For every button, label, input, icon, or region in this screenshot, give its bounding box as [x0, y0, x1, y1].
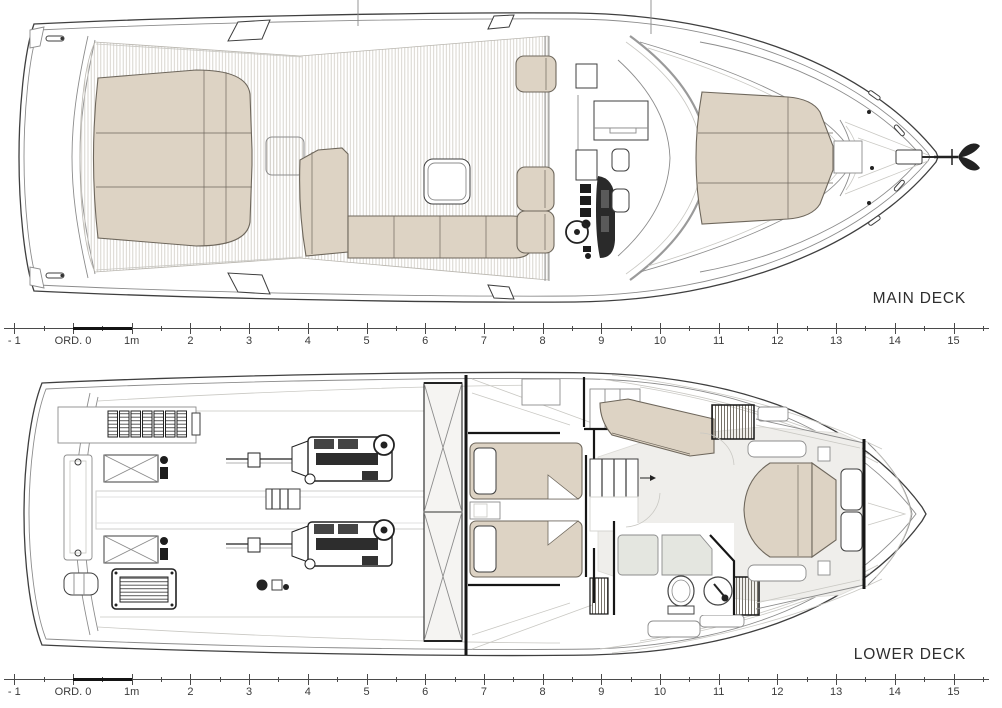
ruler-label: 7 [481, 686, 487, 698]
side-shelf [748, 441, 806, 457]
ruler-tick [954, 323, 955, 334]
ruler-tick [132, 674, 133, 685]
ruler-tick [807, 677, 808, 682]
lower-deck-label: LOWER DECK [854, 646, 966, 664]
bath-bench [648, 621, 700, 637]
ruler-tick [278, 326, 279, 331]
ruler-label: ORD. 0 [55, 686, 92, 698]
shower-tray [662, 535, 712, 575]
ruler-tick [249, 323, 250, 334]
ruler-tick [14, 674, 15, 685]
ruler-baseline [4, 328, 989, 329]
ruler-label: 3 [246, 335, 252, 347]
ruler-tick [895, 674, 896, 685]
ruler-tick [572, 326, 573, 331]
ruler-label: 4 [305, 686, 311, 698]
ruler-label: 11 [713, 335, 724, 347]
ruler-tick [396, 677, 397, 682]
ruler-baseline [4, 679, 989, 680]
ruler-label: 6 [422, 686, 428, 698]
ruler-tick [777, 674, 778, 685]
aft-sunpad [94, 70, 253, 246]
ruler-tick [836, 323, 837, 334]
ruler-tick [807, 326, 808, 331]
helm-stool [612, 189, 629, 212]
ruler-tick [220, 677, 221, 682]
main-deck-drawing [0, 0, 1002, 318]
ruler-tick [220, 326, 221, 331]
shower-icon [704, 577, 732, 605]
main-deck-scale-ruler: - 1ORD. 01m23456789101112131415 [0, 320, 1002, 357]
ruler-tick [425, 674, 426, 685]
ruler-tick [836, 674, 837, 685]
ruler-tick [132, 323, 133, 334]
ruler-tick [367, 674, 368, 685]
ruler-label: 15 [947, 686, 959, 698]
helm-stool [612, 149, 629, 171]
ruler-label: 8 [540, 686, 546, 698]
ruler-label: 2 [187, 686, 193, 698]
nightstand [470, 502, 500, 519]
helm-seats [517, 167, 554, 253]
ruler-label: 14 [889, 686, 901, 698]
ruler-tick [895, 323, 896, 334]
stern-cleat-bottom [46, 273, 64, 278]
guest-bed [470, 521, 582, 577]
ruler-label: 1m [124, 335, 139, 347]
ruler-tick [14, 323, 15, 334]
ruler-tick [190, 674, 191, 685]
ruler-tick [543, 323, 544, 334]
ruler-tick [484, 674, 485, 685]
wardrobe [712, 405, 754, 439]
ruler-label: 14 [889, 335, 901, 347]
ruler-tick [865, 677, 866, 682]
battery-bank [58, 407, 200, 443]
ruler-tick [455, 677, 456, 682]
ruler-label: 9 [598, 686, 604, 698]
ruler-label: 8 [540, 335, 546, 347]
ruler-tick [689, 677, 690, 682]
ruler-label: 7 [481, 335, 487, 347]
foredeck-hatch [834, 141, 862, 173]
ruler-tick [367, 323, 368, 334]
helm-companion-seat [516, 56, 556, 92]
guest-bed [470, 443, 582, 499]
ruler-tick [337, 326, 338, 331]
ruler-label: 10 [654, 335, 666, 347]
main-deck-label: MAIN DECK [873, 290, 966, 308]
equipment-crate [104, 455, 168, 482]
lower-deck-scale-ruler: - 1ORD. 01m23456789101112131415 [0, 671, 1002, 708]
yacht-deck-plans: MAIN DECK LOWER DECK - 1ORD. 01m23456789… [0, 0, 1002, 708]
ruler-tick [983, 326, 984, 331]
ruler-label: - 1 [8, 686, 21, 698]
sink-counter [618, 535, 658, 575]
side-shelf [748, 565, 806, 581]
ruler-tick [513, 677, 514, 682]
ruler-label: 2 [187, 335, 193, 347]
ruler-tick [572, 677, 573, 682]
galley-counter [594, 101, 648, 140]
cabin-door [758, 407, 788, 421]
ruler-scale-bar [73, 678, 132, 681]
ruler-tick [337, 677, 338, 682]
ruler-tick [249, 674, 250, 685]
equipment-crate [104, 536, 168, 563]
ruler-tick [748, 326, 749, 331]
nightstand [841, 469, 862, 510]
ruler-tick [396, 326, 397, 331]
ruler-label: 13 [830, 335, 842, 347]
ruler-tick [924, 326, 925, 331]
toilet-icon [668, 576, 694, 614]
ruler-tick [455, 326, 456, 331]
ruler-label: 5 [363, 686, 369, 698]
ruler-label: 9 [598, 335, 604, 347]
ruler-label: 6 [422, 335, 428, 347]
ruler-tick [631, 677, 632, 682]
ruler-label: - 1 [8, 335, 21, 347]
water-tank [64, 573, 98, 595]
ruler-tick [161, 326, 162, 331]
master-bed [744, 463, 836, 557]
ruler-scale-bar [73, 327, 132, 330]
ruler-label: 12 [771, 686, 783, 698]
nightstand [841, 512, 862, 551]
ruler-tick [719, 674, 720, 685]
hull-locker [818, 561, 830, 575]
ruler-tick [513, 326, 514, 331]
ruler-tick [308, 674, 309, 685]
ruler-tick [924, 677, 925, 682]
ruler-tick [601, 674, 602, 685]
ruler-tick [983, 677, 984, 682]
ruler-tick [660, 323, 661, 334]
ruler-label: ORD. 0 [55, 335, 92, 347]
ruler-label: 1m [124, 686, 139, 698]
anchor-icon [934, 144, 980, 171]
ruler-tick [865, 326, 866, 331]
coffee-table [424, 159, 470, 204]
fuel-tank [424, 383, 462, 641]
step-ladder [266, 489, 300, 509]
ruler-label: 11 [713, 686, 724, 698]
ruler-tick [44, 326, 45, 331]
hull-locker [818, 447, 830, 461]
ruler-label: 10 [654, 686, 666, 698]
locker [590, 578, 608, 614]
ruler-tick [484, 323, 485, 334]
ruler-tick [161, 677, 162, 682]
ruler-label: 5 [363, 335, 369, 347]
ruler-label: 12 [771, 335, 783, 347]
ruler-tick [748, 677, 749, 682]
ruler-tick [631, 326, 632, 331]
ruler-label: 13 [830, 686, 842, 698]
ruler-tick [601, 323, 602, 334]
lower-deck-drawing [0, 363, 1002, 669]
ruler-tick [719, 323, 720, 334]
ruler-tick [954, 674, 955, 685]
ruler-tick [689, 326, 690, 331]
ruler-tick [308, 323, 309, 334]
ruler-label: 3 [246, 686, 252, 698]
ruler-tick [44, 677, 45, 682]
ruler-tick [543, 674, 544, 685]
ruler-tick [425, 323, 426, 334]
ruler-label: 15 [947, 335, 959, 347]
deck-hatch [266, 137, 304, 175]
generator [112, 569, 176, 609]
wardrobe [733, 577, 759, 615]
ruler-tick [190, 323, 191, 334]
ruler-label: 4 [305, 335, 311, 347]
ruler-tick [660, 674, 661, 685]
stern-cleat-top [46, 36, 64, 41]
ruler-tick [278, 677, 279, 682]
cabin-shelf [700, 615, 744, 627]
engine-room-locker [64, 455, 92, 560]
ruler-tick [777, 323, 778, 334]
